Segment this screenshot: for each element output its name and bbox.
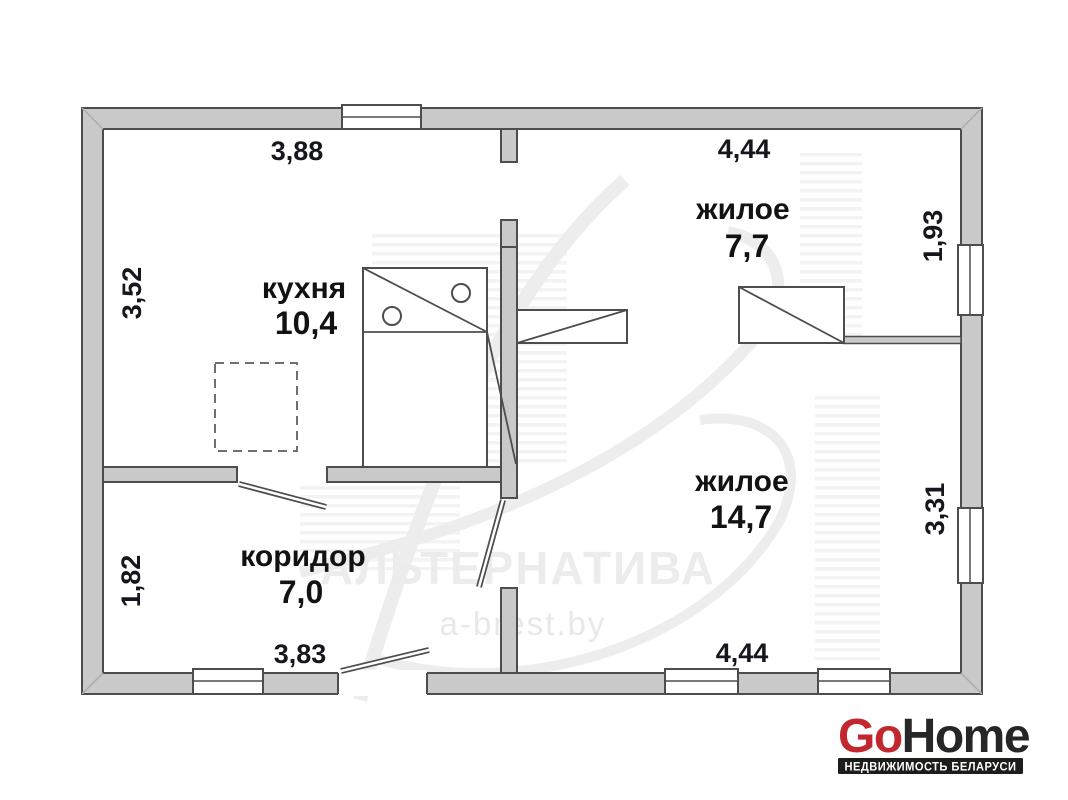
label-room77-name: жилое — [695, 193, 789, 226]
wall-partition-77-147 — [844, 337, 961, 344]
floor-plan-canvas: АЛЬТЕРНАТИВА a-brest.by — [0, 0, 1068, 800]
label-corridor-name: коридор — [240, 540, 365, 573]
window-room147-bottom-2 — [818, 669, 890, 694]
dim-room147-right: 3,31 — [920, 483, 950, 536]
window-room147-bottom-1 — [665, 669, 738, 694]
wall-corridor-top-left — [103, 467, 237, 482]
door-panel-right-77-147 — [739, 287, 844, 343]
label-kitchen-name: кухня — [262, 272, 346, 305]
watermark-agency-text: АЛЬТЕРНАТИВА — [320, 542, 716, 594]
gohome-logo: GoHome НЕДВИЖИМОСТЬ БЕЛАРУСИ — [838, 710, 1030, 774]
dim-room77-right: 1,93 — [918, 210, 948, 263]
watermark-site-text: a-brest.by — [440, 605, 607, 642]
window-room147-right — [958, 508, 983, 583]
wall-center-upper-stub — [501, 220, 517, 247]
dim-corridor-left: 1,82 — [116, 555, 146, 608]
gohome-tagline-text: НЕДВИЖИМОСТЬ БЕЛАРУСИ — [845, 760, 1017, 774]
dim-room77-top: 4,44 — [718, 134, 771, 164]
gohome-word-go: Go — [838, 710, 902, 763]
dim-room147-bottom: 4,44 — [716, 638, 769, 668]
label-corridor-area: 7,0 — [279, 574, 323, 610]
window-corridor-bottom — [193, 669, 263, 694]
wall-center-bottom — [501, 588, 517, 673]
label-room147-area: 14,7 — [710, 499, 772, 535]
stove-burner-left — [383, 307, 401, 325]
wall-center-top-stub — [501, 129, 517, 162]
label-room77-area: 7,7 — [725, 228, 769, 264]
watermark-stripes-room147 — [815, 395, 880, 660]
wall-corridor-top-right — [327, 467, 501, 482]
entrance-opening — [338, 670, 427, 696]
window-room77-right — [958, 245, 983, 315]
kitchen-dashed-fixture — [215, 363, 297, 451]
floor-plan-page: АЛЬТЕРНАТИВА a-brest.by — [0, 0, 1068, 800]
label-room147-name: жилое — [694, 465, 788, 498]
label-kitchen-area: 10,4 — [275, 305, 337, 341]
dim-corridor-bottom: 3,83 — [274, 639, 327, 669]
dim-kitchen-top: 3,88 — [271, 136, 324, 166]
stove-block — [363, 268, 487, 467]
door-panel-left-77-147 — [517, 310, 627, 343]
window-kitchen-top — [342, 105, 421, 129]
gohome-wordmark: GoHome — [838, 710, 1030, 763]
gohome-word-home: Home — [902, 710, 1030, 763]
stove-burner-right — [452, 284, 470, 302]
dim-kitchen-left: 3,52 — [117, 267, 147, 320]
